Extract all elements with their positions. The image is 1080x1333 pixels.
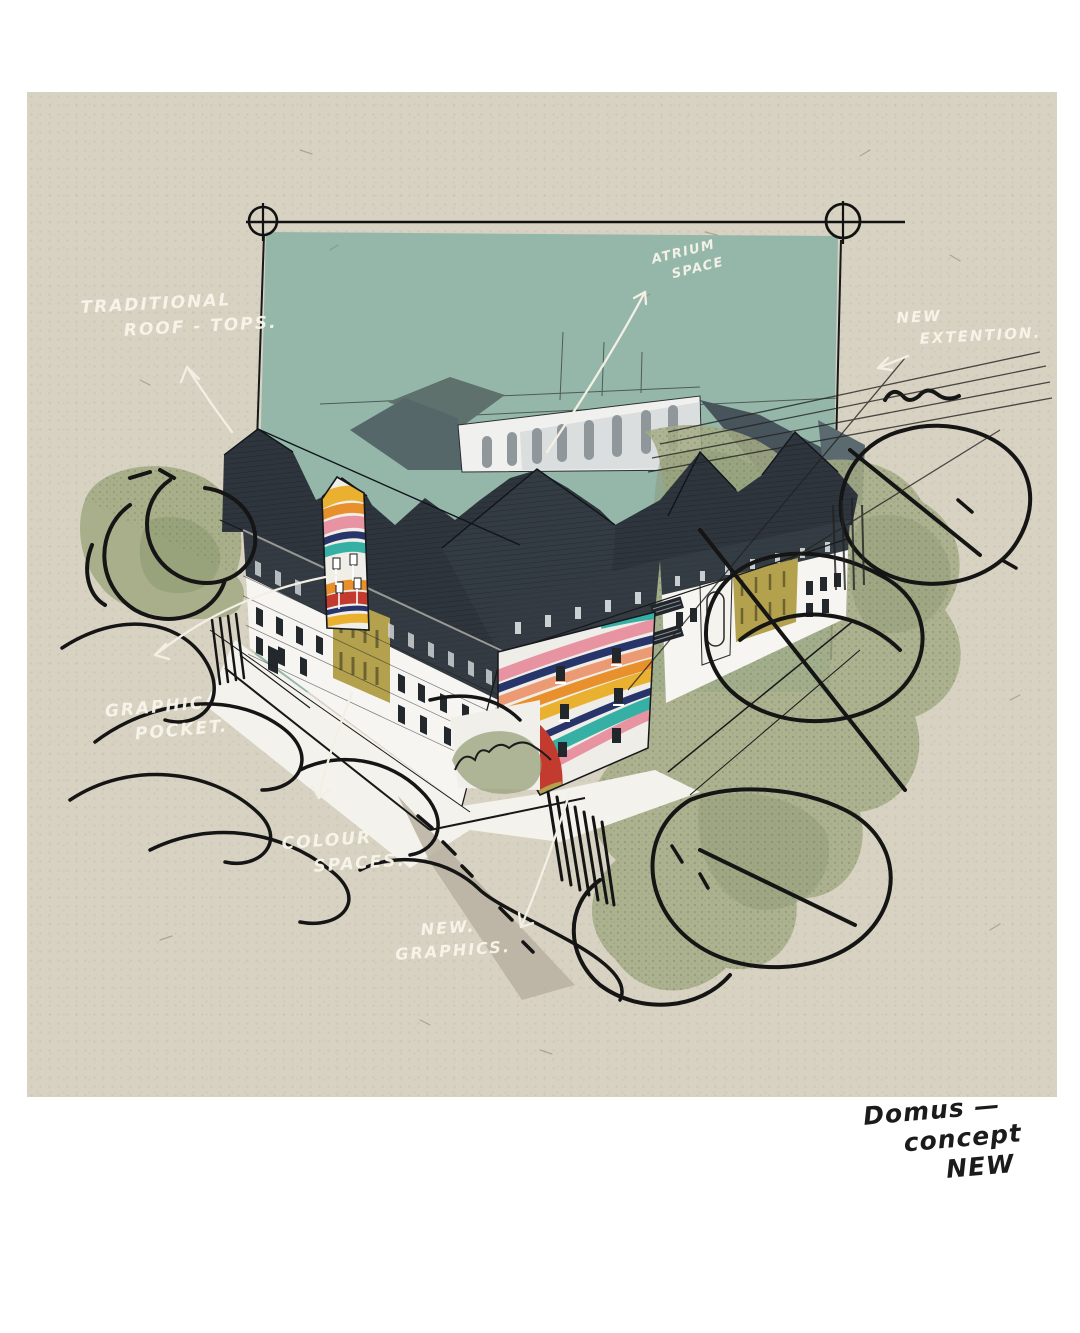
label-colour-spaces: COLOUR SPACES. [281, 823, 407, 881]
label-line: NEW. [420, 916, 476, 939]
label-line: NEW [896, 307, 942, 327]
label-new-extension: NEW EXTENTION. [896, 300, 1042, 351]
label-line: COLOUR [281, 828, 373, 854]
label-graphic-pocket: GRAPHIC POCKET. [104, 689, 229, 749]
label-new-graphics: NEW. GRAPHICS. [393, 912, 512, 966]
label-traditional-rooftops: TRADITIONAL ROOF - TOPS. [80, 286, 278, 345]
artboard: TRADITIONAL ROOF - TOPS. ATRIUM SPACE NE… [0, 0, 1080, 1333]
artist-signature: Domus — concept NEW [862, 1088, 1026, 1191]
